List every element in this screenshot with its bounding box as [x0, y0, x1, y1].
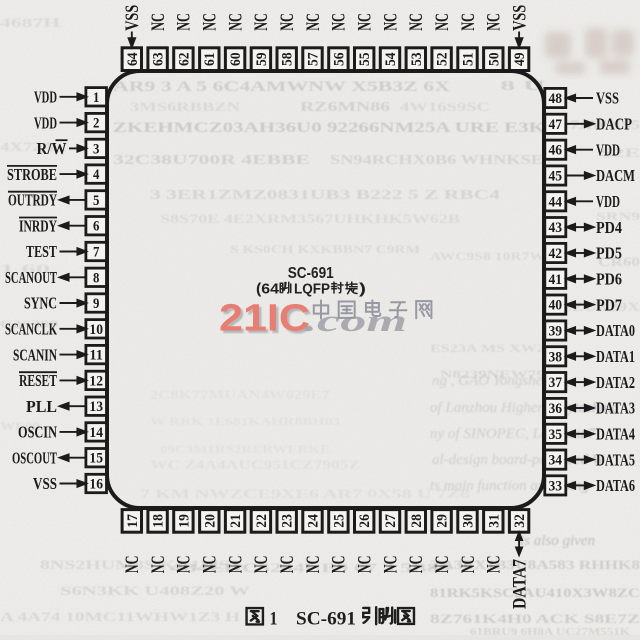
svg-text:NC: NC [174, 556, 195, 574]
svg-text:9: 9 [93, 296, 99, 312]
svg-text:64: 64 [125, 52, 141, 66]
svg-text:NC: NC [432, 13, 453, 31]
svg-text:21: 21 [228, 514, 244, 528]
svg-text:NC: NC [484, 556, 505, 574]
svg-text:15: 15 [89, 451, 103, 467]
svg-text:38: 38 [549, 349, 563, 365]
svg-text:21IC: 21IC [219, 298, 310, 340]
svg-text:NC: NC [355, 556, 376, 574]
svg-text:is also given: is also given [520, 533, 595, 549]
svg-text:7: 7 [93, 244, 100, 260]
svg-text:NC: NC [277, 13, 298, 31]
svg-text:81RK5KSC2AU410X3W8ZC: 81RK5KSC2AU410X3W8ZC [430, 585, 640, 600]
svg-text:DATA4: DATA4 [596, 425, 635, 444]
svg-text:RESET: RESET [19, 371, 57, 390]
svg-text:23: 23 [280, 514, 296, 528]
svg-text:NC: NC [303, 556, 324, 574]
svg-text:VSS: VSS [596, 89, 619, 108]
svg-text:5: 5 [93, 193, 99, 209]
svg-text:60: 60 [228, 52, 244, 66]
svg-text:NC: NC [329, 556, 350, 574]
svg-text:NC: NC [148, 556, 169, 574]
svg-text:4687H: 4687H [0, 15, 60, 30]
svg-text:PD4: PD4 [596, 218, 622, 237]
svg-text:24: 24 [306, 514, 322, 528]
svg-text:OUTRDY: OUTRDY [8, 191, 57, 210]
svg-text:NC: NC [458, 556, 479, 574]
svg-text:INRDY: INRDY [19, 216, 57, 235]
svg-text:SCANIN: SCANIN [13, 345, 57, 364]
svg-text:DATA7: DATA7 [509, 559, 530, 609]
svg-text:NC: NC [174, 13, 195, 31]
svg-text:35: 35 [549, 427, 563, 443]
svg-text:NC: NC [251, 13, 272, 31]
svg-text:DATA3: DATA3 [596, 399, 635, 418]
svg-text:R/W: R/W [37, 139, 67, 158]
svg-text:NC: NC [458, 13, 479, 31]
svg-text:NC: NC [406, 13, 427, 31]
svg-text:DATA0: DATA0 [596, 321, 635, 340]
svg-text:DACP: DACP [596, 115, 632, 134]
svg-text:53: 53 [409, 52, 425, 66]
svg-text:NC: NC [355, 13, 376, 31]
svg-text:PLL: PLL [26, 397, 57, 416]
svg-text:(64: (64 [256, 282, 279, 298]
svg-text:11: 11 [89, 348, 103, 364]
svg-text:VDD: VDD [596, 140, 620, 159]
svg-text:NC: NC [148, 13, 169, 31]
svg-text:VSS: VSS [33, 474, 57, 493]
svg-text:SCANCLK: SCANCLK [5, 320, 57, 339]
svg-text:NC: NC [380, 556, 401, 574]
svg-text:26: 26 [357, 514, 373, 528]
svg-text:32: 32 [512, 514, 528, 528]
svg-text:4: 4 [93, 167, 100, 183]
svg-text:TEST: TEST [26, 242, 57, 261]
svg-text:28: 28 [409, 514, 425, 528]
svg-text:DACM: DACM [596, 166, 635, 185]
svg-text:NC: NC [122, 556, 143, 574]
svg-text:VDD: VDD [596, 192, 620, 211]
svg-text:48: 48 [549, 91, 563, 107]
svg-text:NC: NC [406, 556, 427, 574]
svg-text:19: 19 [176, 514, 192, 528]
svg-text:27: 27 [383, 514, 399, 528]
svg-text:61: 61 [202, 52, 218, 66]
svg-text:OSCOUT: OSCOUT [12, 448, 57, 467]
svg-text:58: 58 [280, 52, 296, 66]
svg-text:DATA2: DATA2 [596, 373, 635, 392]
svg-text:PD5: PD5 [596, 244, 622, 263]
svg-text:3: 3 [93, 141, 99, 157]
svg-text:17: 17 [125, 514, 141, 528]
svg-text:NC: NC [200, 556, 221, 574]
svg-text:55: 55 [357, 52, 373, 66]
svg-text:8: 8 [93, 270, 99, 286]
svg-text:40: 40 [549, 298, 563, 314]
svg-text:16: 16 [89, 477, 103, 493]
svg-text:42: 42 [549, 246, 563, 262]
svg-text:1: 1 [93, 90, 99, 106]
svg-text:57: 57 [306, 52, 322, 66]
svg-text:LQFP: LQFP [294, 282, 330, 298]
svg-text:62: 62 [176, 52, 192, 66]
svg-text:NC: NC [484, 13, 505, 31]
svg-text:30: 30 [460, 514, 476, 528]
svg-text:44: 44 [549, 194, 563, 210]
svg-text:DATA1: DATA1 [596, 347, 635, 366]
svg-text:33: 33 [549, 478, 563, 494]
svg-text:DATA5: DATA5 [596, 450, 635, 469]
svg-text:SC-691: SC-691 [296, 609, 356, 630]
svg-text:45: 45 [549, 168, 563, 184]
svg-text:): ) [359, 282, 366, 298]
svg-text:NC: NC [303, 13, 324, 31]
svg-text:52: 52 [435, 52, 451, 66]
svg-text:6: 6 [93, 219, 100, 235]
svg-text:51: 51 [460, 52, 476, 66]
svg-text:NC: NC [251, 556, 272, 574]
svg-text:A 4A74 10MC11WHW1Z3 H: A 4A74 10MC11WHW1Z3 H [0, 609, 240, 624]
svg-text:SC-691: SC-691 [288, 265, 334, 282]
svg-text:PD7: PD7 [596, 295, 622, 314]
svg-text:NC: NC [225, 556, 246, 574]
svg-text:SCANOUT: SCANOUT [5, 268, 57, 287]
svg-text:49: 49 [512, 52, 528, 66]
svg-text:2: 2 [93, 116, 99, 132]
svg-text:NC: NC [225, 13, 246, 31]
svg-text:NC: NC [329, 13, 350, 31]
svg-text:50: 50 [486, 52, 502, 66]
svg-text:VSS: VSS [122, 5, 143, 31]
svg-text:46: 46 [549, 143, 563, 159]
svg-text:NC: NC [277, 556, 298, 574]
svg-text:NC: NC [200, 13, 221, 31]
svg-text:43: 43 [549, 220, 563, 236]
svg-text:OSCIN: OSCIN [18, 423, 58, 442]
svg-text:NC: NC [432, 556, 453, 574]
svg-text:S6N3KK U408Z20 W: S6N3KK U408Z20 W [60, 583, 250, 598]
svg-text:1: 1 [270, 609, 278, 630]
svg-text:29: 29 [435, 514, 451, 528]
svg-text:25: 25 [331, 514, 347, 528]
svg-text:VDD: VDD [34, 113, 57, 132]
svg-text:18: 18 [151, 514, 167, 528]
svg-text:12: 12 [89, 373, 103, 389]
svg-text:STROBE: STROBE [7, 165, 57, 184]
svg-text:37: 37 [549, 375, 563, 391]
svg-text:39: 39 [549, 323, 563, 339]
svg-text:20: 20 [202, 514, 218, 528]
svg-text:VDD: VDD [34, 88, 57, 107]
svg-text:VSS: VSS [509, 5, 530, 31]
svg-text:47: 47 [549, 117, 563, 133]
svg-text:10: 10 [89, 322, 103, 338]
svg-text:36: 36 [549, 401, 563, 417]
svg-text:DATA6: DATA6 [596, 476, 635, 495]
svg-text:8Z761K4H0 ACK S8E7Z: 8Z761K4H0 ACK S8E7Z [430, 611, 640, 626]
svg-text:14: 14 [89, 425, 103, 441]
svg-text:NC: NC [380, 13, 401, 31]
svg-text:63: 63 [151, 52, 167, 66]
svg-text:61BRU9 6H8A UC27M551K: 61BRU9 6H8A UC27M551K [470, 627, 630, 635]
svg-text:PD6: PD6 [596, 270, 622, 289]
svg-text:56: 56 [331, 52, 347, 66]
svg-text:59: 59 [254, 52, 270, 66]
svg-text:41: 41 [549, 272, 563, 288]
svg-text:13: 13 [89, 399, 103, 415]
svg-text:34: 34 [549, 453, 563, 469]
svg-text:54: 54 [383, 52, 399, 66]
svg-text:SYNC: SYNC [24, 294, 57, 313]
svg-text:22: 22 [254, 514, 270, 528]
svg-text:31: 31 [486, 514, 502, 528]
